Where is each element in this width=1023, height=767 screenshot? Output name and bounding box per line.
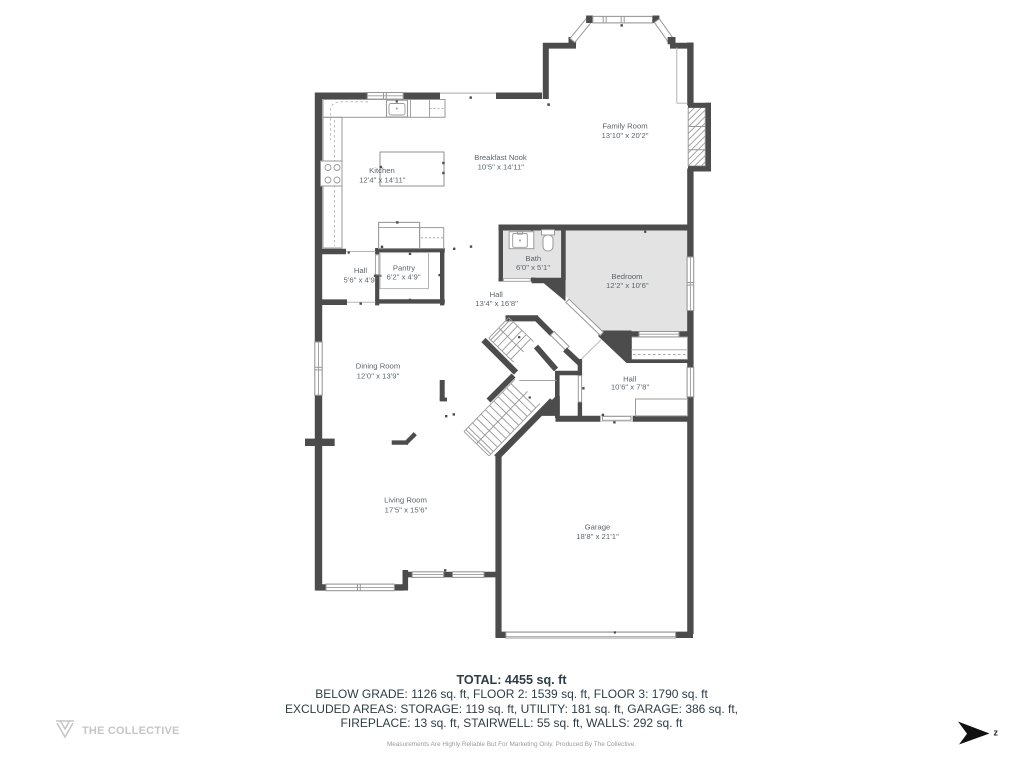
svg-text:THE COLLECTIVE: THE COLLECTIVE bbox=[82, 725, 180, 737]
svg-text:5’6" x 4’9": 5’6" x 4’9" bbox=[343, 276, 377, 285]
svg-text:Family Room: Family Room bbox=[602, 122, 647, 131]
svg-text:17’5" x 15’6": 17’5" x 15’6" bbox=[385, 505, 428, 514]
svg-text:6’2" x 4’9": 6’2" x 4’9" bbox=[386, 273, 420, 282]
svg-text:Hall: Hall bbox=[354, 266, 368, 275]
svg-text:Bath: Bath bbox=[525, 254, 541, 263]
svg-text:Dining Room: Dining Room bbox=[356, 362, 400, 371]
svg-text:z: z bbox=[994, 728, 999, 738]
svg-text:13’10" x 20’2": 13’10" x 20’2" bbox=[602, 131, 649, 140]
svg-text:6’0" x 5’1": 6’0" x 5’1" bbox=[516, 263, 550, 272]
svg-text:10’5" x 14’11": 10’5" x 14’11" bbox=[478, 163, 525, 172]
svg-text:12’0" x 13’9": 12’0" x 13’9" bbox=[357, 372, 400, 381]
svg-text:Hall: Hall bbox=[490, 290, 504, 299]
svg-text:10’6" x 7’8": 10’6" x 7’8" bbox=[611, 382, 650, 391]
svg-text:Living Room: Living Room bbox=[384, 495, 427, 504]
svg-text:13’4" x 16’8": 13’4" x 16’8" bbox=[475, 299, 518, 308]
svg-text:18’8" x 21’1": 18’8" x 21’1" bbox=[576, 532, 619, 541]
svg-text:12’4" x 14’11": 12’4" x 14’11" bbox=[359, 175, 406, 184]
svg-text:Garage: Garage bbox=[585, 523, 611, 532]
svg-text:Bedroom: Bedroom bbox=[611, 272, 642, 281]
svg-text:Pantry: Pantry bbox=[393, 263, 415, 272]
svg-text:12’2" x 10’6": 12’2" x 10’6" bbox=[606, 281, 649, 290]
svg-text:Kitchen: Kitchen bbox=[369, 166, 395, 175]
svg-text:Breakfast Nook: Breakfast Nook bbox=[474, 153, 527, 162]
